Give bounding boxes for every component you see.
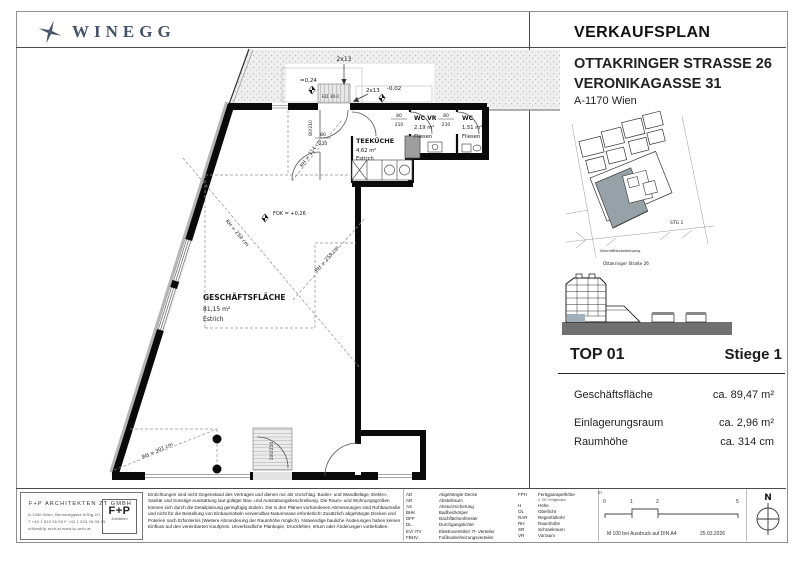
winegg-logo: WINEGG: [38, 20, 176, 44]
scale-tick: 5: [736, 499, 739, 505]
architect-address: A-1060 Wien, Bernardgasse 6/Stg.2/1: [28, 512, 101, 517]
architect-web: office@fp-arch.at www.fp-arch.at: [28, 526, 91, 531]
legend-abbr: EV/ ITV: [406, 529, 439, 534]
brand-name: WINEGG: [72, 22, 176, 42]
fact-label: Einlagerungsraum: [574, 417, 663, 429]
legend-abbr: DFF: [406, 516, 439, 521]
room-name: WC: [462, 115, 474, 122]
scale-note: M 100 bei Ausdruck auf DIN A4: [607, 531, 676, 537]
legend-label: Abstellraum: [439, 498, 463, 503]
north-arrow-icon: N: [748, 489, 788, 541]
unit-heading-divider: [558, 373, 785, 374]
room-area: 2,19 m²: [414, 125, 434, 131]
highlighted-floor: [567, 314, 585, 322]
scale-unit: m: [598, 490, 602, 495]
address-city: A-1170 Wien: [574, 95, 637, 107]
floor-plan-drawing: 2x13 =0,24 2x13 -0,02 EI2 30-C 80/210 80…: [60, 48, 565, 488]
compass-star-icon: [38, 20, 62, 44]
room-area: 81,15 m²: [203, 306, 231, 313]
address-line1: OTTAKRINGER STRASSE 26: [574, 56, 772, 72]
door-width: 80: [396, 113, 402, 119]
stg-label: STG 1: [670, 220, 684, 226]
legend-label: Höhe: [538, 503, 549, 508]
fact-row: Geschäftsfläche ca. 89,47 m²: [574, 389, 774, 401]
room-floor: Fliesen: [462, 134, 480, 140]
legend-abbr: FBHV: [406, 535, 439, 540]
door-height: 210: [442, 122, 451, 128]
fire-door-label: EI2 30-C: [322, 94, 340, 99]
footer-section-divider: [746, 489, 747, 541]
legend-abbr: AS: [406, 504, 439, 509]
legend-label: Schrankraum: [538, 527, 565, 532]
unit-number: TOP 01: [570, 346, 625, 364]
legend-label: Dachflächenfenster: [439, 516, 478, 521]
footer-section-divider: [403, 489, 404, 541]
door-dim-label: 100/250: [269, 442, 275, 461]
legend-abbr: SR: [518, 527, 538, 532]
legend-label: Oberlicht: [538, 509, 556, 514]
fact-value: ca. 314 cm: [720, 436, 774, 448]
scale-tick: 1: [630, 499, 633, 505]
legend-label: Absturzsicherung: [439, 504, 474, 509]
stair-count-label: 2x13: [336, 56, 351, 63]
legend-abbr: DL: [406, 522, 439, 527]
room-floor: Estrich: [356, 156, 374, 162]
level-label: =0,24: [300, 78, 317, 84]
legend-abbr: FPH: [518, 492, 538, 497]
room-area: 1,51 m²: [462, 125, 482, 131]
plan-date: 25.03.2026: [700, 531, 725, 537]
page-title: VERKAUFSPLAN: [574, 24, 710, 42]
legend-label: Regenfallrohr: [538, 515, 565, 520]
architect-logo-sub: Architekten: [103, 517, 136, 521]
street-label: Ottakringer Straße 26: [603, 261, 649, 266]
level-label: -0,02: [387, 86, 401, 92]
room-name: GESCHÄFTSFLÄCHE: [203, 293, 286, 302]
unit-heading: TOP 01 Stiege 1: [570, 346, 782, 364]
north-label: N: [764, 493, 772, 503]
legend-abbr: RH: [518, 521, 538, 526]
legend-abbr: RAR: [518, 515, 538, 520]
fact-value: ca. 89,47 m²: [713, 389, 774, 401]
verkaufsplan-sheet: { "brand": {"name": "WINEGG"}, "header":…: [0, 0, 800, 565]
fact-label: Geschäftsfläche: [574, 389, 653, 401]
legend-abbr: VR: [518, 533, 538, 538]
room-floor: Estrich: [203, 316, 224, 323]
legend-label: Fußbodenheizungsverteiler: [439, 535, 494, 540]
column: [213, 465, 222, 474]
courtyard-hatch: [228, 49, 560, 110]
scale-tick: 2: [656, 499, 659, 505]
stair-count-label: 2x13: [366, 88, 380, 94]
site-plan-drawing: STG 1 Geschäftslokaleingang Ottakringer …: [562, 110, 720, 270]
legend-abbr: OL: [518, 509, 538, 514]
legend-abbr: AR: [406, 498, 439, 503]
door-width: 80: [320, 132, 326, 138]
legend-abbr: H: [518, 503, 538, 508]
door-width: 80: [443, 113, 449, 119]
architect-logo: F+P Architekten: [102, 499, 137, 534]
architect-phone: T +43 1 523 26 05 F +43 1 523 26 05-15: [28, 519, 106, 524]
footer-divider: [16, 488, 786, 489]
legend-label: Durchgangslichte: [439, 522, 474, 527]
legend-abbr: AD: [406, 492, 439, 497]
fact-row: Einlagerungsraum ca. 2,96 m²: [574, 417, 774, 429]
scale-bar: [598, 506, 748, 524]
legend-label: Badheizkörper: [439, 510, 468, 515]
legend-label: Elektroverteiler/ IT- Verteiler: [439, 529, 495, 534]
abbreviation-legend: ADAbgehängte Decke ARAbstellraum ASAbstu…: [406, 492, 596, 540]
room-name: WC VR: [414, 115, 437, 122]
room-name: TEEKÜCHE: [356, 136, 394, 145]
legend-label: Vorraum: [538, 533, 555, 538]
legend-label: Abgehängte Decke: [439, 492, 477, 497]
entrance-label: Geschäftslokaleingang: [600, 249, 641, 253]
fact-value: ca. 2,96 m²: [719, 417, 774, 429]
legend-label: Fertigparapethöhe: [538, 492, 575, 497]
fact-label: Raumhöhe: [574, 436, 628, 448]
room-area: 4,62 m²: [356, 148, 376, 154]
door-height: 210: [395, 122, 404, 128]
room-floor: Fliesen: [414, 134, 432, 140]
architect-logo-text: F+P: [103, 505, 136, 517]
kitchen-fixtures: [352, 160, 412, 180]
building-section-drawing: [560, 272, 740, 340]
scale-tick: 0: [603, 499, 606, 505]
legal-text: Einrichtungen sind nicht Gegenstand des …: [148, 492, 401, 531]
fok-label: FOK = +0,26: [273, 211, 306, 217]
address-line2: VERONIKAGASSE 31: [574, 76, 721, 92]
legend-note: ü. OK Fertigboden: [538, 498, 596, 502]
architect-block: F+P ARCHITEKTEN ZT GMBH A-1060 Wien, Ber…: [20, 492, 143, 540]
fact-row: Raumhöhe ca. 314 cm: [574, 436, 774, 448]
door-dim-label: 80/210: [308, 120, 314, 136]
legend-label: Raumhöhe: [538, 521, 560, 526]
column: [213, 435, 222, 444]
legend-abbr: BHK: [406, 510, 439, 515]
staircase-number: Stiege 1: [724, 346, 782, 363]
